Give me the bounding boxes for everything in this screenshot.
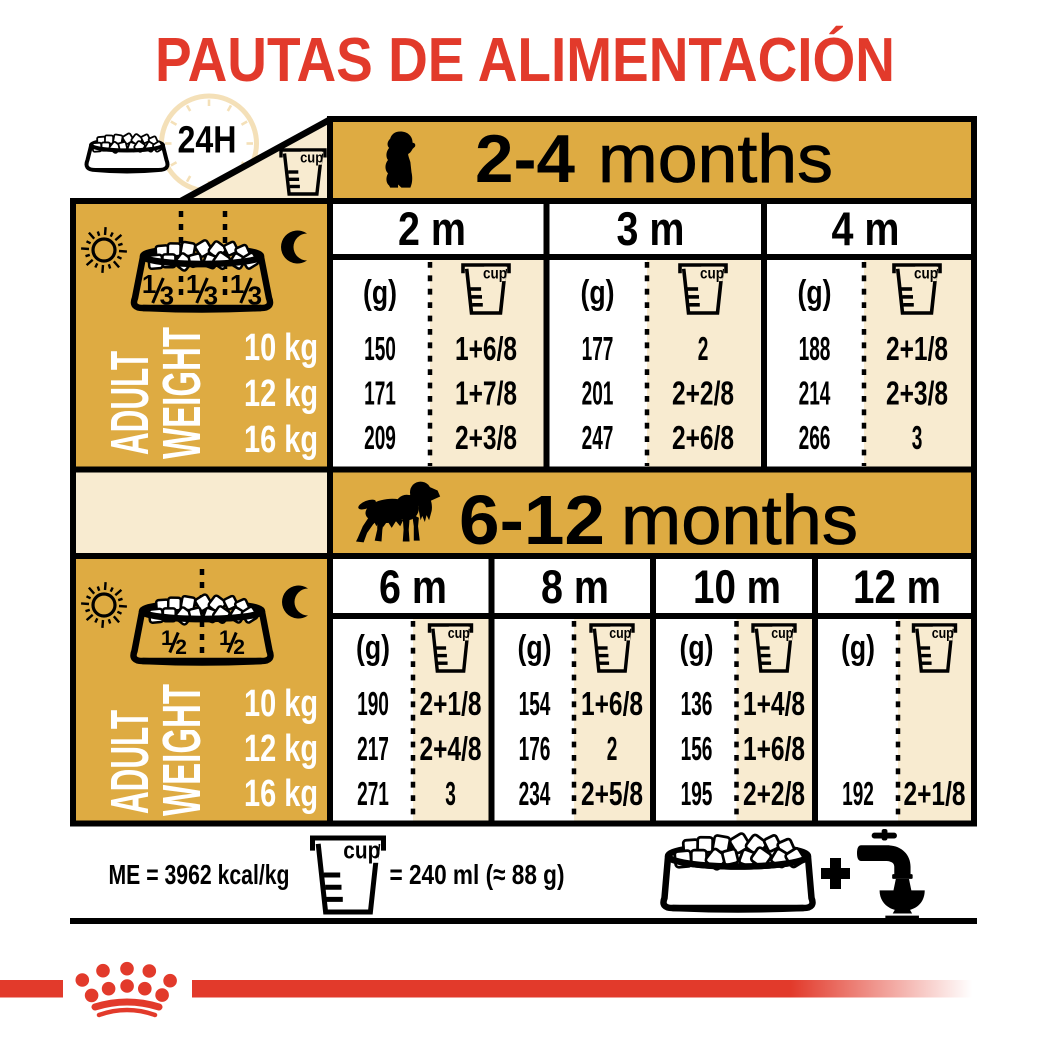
- svg-text:months: months: [621, 481, 858, 559]
- svg-text:156: 156: [681, 730, 713, 767]
- svg-text:3: 3: [160, 280, 174, 310]
- svg-text:cup: cup: [343, 838, 380, 865]
- svg-text:16 kg: 16 kg: [244, 419, 318, 461]
- svg-text:154: 154: [519, 685, 551, 722]
- svg-text:cup: cup: [932, 625, 954, 642]
- svg-text:3: 3: [912, 419, 923, 456]
- svg-text:201: 201: [582, 375, 614, 412]
- svg-text:2: 2: [233, 636, 245, 659]
- svg-text:cup: cup: [483, 265, 507, 282]
- svg-text:2: 2: [698, 330, 709, 367]
- svg-text:10 kg: 10 kg: [244, 327, 318, 369]
- svg-text:16 kg: 16 kg: [244, 773, 318, 815]
- svg-text:4 m: 4 m: [832, 202, 900, 255]
- svg-text:12 m: 12 m: [853, 560, 941, 613]
- svg-text:10 kg: 10 kg: [244, 683, 318, 725]
- svg-text:1: 1: [186, 269, 200, 299]
- svg-text:3 m: 3 m: [617, 202, 685, 255]
- svg-text:177: 177: [582, 330, 614, 367]
- svg-text:247: 247: [582, 419, 614, 456]
- svg-text:3: 3: [204, 280, 218, 310]
- svg-text:(g): (g): [363, 274, 397, 312]
- svg-text:150: 150: [364, 330, 396, 367]
- svg-text:ADULT: ADULT: [100, 351, 160, 455]
- svg-text:cup: cup: [771, 625, 793, 642]
- svg-text:2+4/8: 2+4/8: [420, 730, 482, 767]
- svg-text:188: 188: [799, 330, 831, 367]
- svg-text:1+7/8: 1+7/8: [455, 375, 517, 412]
- svg-text:WEIGHT: WEIGHT: [152, 327, 212, 459]
- svg-text:1+6/8: 1+6/8: [743, 730, 805, 767]
- svg-text:2+3/8: 2+3/8: [886, 375, 948, 412]
- svg-text:266: 266: [799, 419, 831, 456]
- svg-text:cup: cup: [300, 149, 323, 166]
- svg-text:2+1/8: 2+1/8: [420, 685, 482, 722]
- svg-text:271: 271: [357, 775, 389, 812]
- svg-text:months: months: [598, 121, 833, 197]
- svg-text:cup: cup: [448, 625, 470, 642]
- svg-text:WEIGHT: WEIGHT: [152, 684, 212, 816]
- svg-text:2+1/8: 2+1/8: [904, 775, 966, 812]
- svg-text:214: 214: [799, 375, 831, 412]
- svg-text:1+6/8: 1+6/8: [581, 685, 643, 722]
- svg-text:2+5/8: 2+5/8: [581, 775, 643, 812]
- svg-text:192: 192: [842, 775, 874, 812]
- svg-text:136: 136: [681, 685, 713, 722]
- svg-text:(g): (g): [518, 629, 552, 667]
- svg-text:209: 209: [364, 419, 396, 456]
- svg-text:195: 195: [681, 775, 713, 812]
- svg-text:10 m: 10 m: [693, 560, 781, 613]
- svg-text:2: 2: [607, 730, 618, 767]
- svg-text:2+3/8: 2+3/8: [455, 419, 517, 456]
- svg-text:6-12: 6-12: [459, 481, 605, 559]
- svg-text:8 m: 8 m: [541, 560, 609, 613]
- svg-text:190: 190: [357, 685, 389, 722]
- svg-text:3: 3: [445, 775, 456, 812]
- svg-text:2+6/8: 2+6/8: [672, 419, 734, 456]
- svg-text:1+6/8: 1+6/8: [455, 330, 517, 367]
- svg-text:= 240 ml (≈ 88 g): = 240 ml (≈ 88 g): [390, 859, 565, 890]
- svg-text:176: 176: [519, 730, 551, 767]
- svg-text:(g): (g): [798, 274, 832, 312]
- svg-text:171: 171: [364, 375, 396, 412]
- svg-text:2+2/8: 2+2/8: [672, 375, 734, 412]
- svg-text:12 kg: 12 kg: [244, 728, 318, 770]
- svg-text:cup: cup: [700, 265, 724, 282]
- svg-text:24H: 24H: [178, 120, 237, 162]
- svg-text:2-4: 2-4: [475, 121, 575, 197]
- svg-text:1+4/8: 1+4/8: [743, 685, 805, 722]
- svg-text:ADULT: ADULT: [100, 710, 160, 814]
- svg-text:ME = 3962 kcal/kg: ME = 3962 kcal/kg: [109, 859, 290, 890]
- svg-text:PAUTAS DE ALIMENTACIÓN: PAUTAS DE ALIMENTACIÓN: [155, 26, 895, 95]
- svg-text:217: 217: [357, 730, 389, 767]
- svg-text:cup: cup: [609, 625, 631, 642]
- svg-text:2 m: 2 m: [398, 202, 466, 255]
- svg-text:2+2/8: 2+2/8: [743, 775, 805, 812]
- svg-text:6 m: 6 m: [379, 560, 447, 613]
- svg-text:(g): (g): [680, 629, 714, 667]
- svg-text:234: 234: [519, 775, 551, 812]
- svg-text:(g): (g): [581, 274, 615, 312]
- svg-text:2+1/8: 2+1/8: [886, 330, 948, 367]
- svg-text:1: 1: [230, 269, 244, 299]
- svg-text:2: 2: [175, 636, 187, 659]
- svg-text:cup: cup: [914, 265, 938, 282]
- svg-text:3: 3: [248, 280, 262, 310]
- svg-text:(g): (g): [841, 629, 875, 667]
- svg-text:(g): (g): [356, 629, 390, 667]
- svg-text:1: 1: [142, 269, 156, 299]
- svg-text:12 kg: 12 kg: [244, 373, 318, 415]
